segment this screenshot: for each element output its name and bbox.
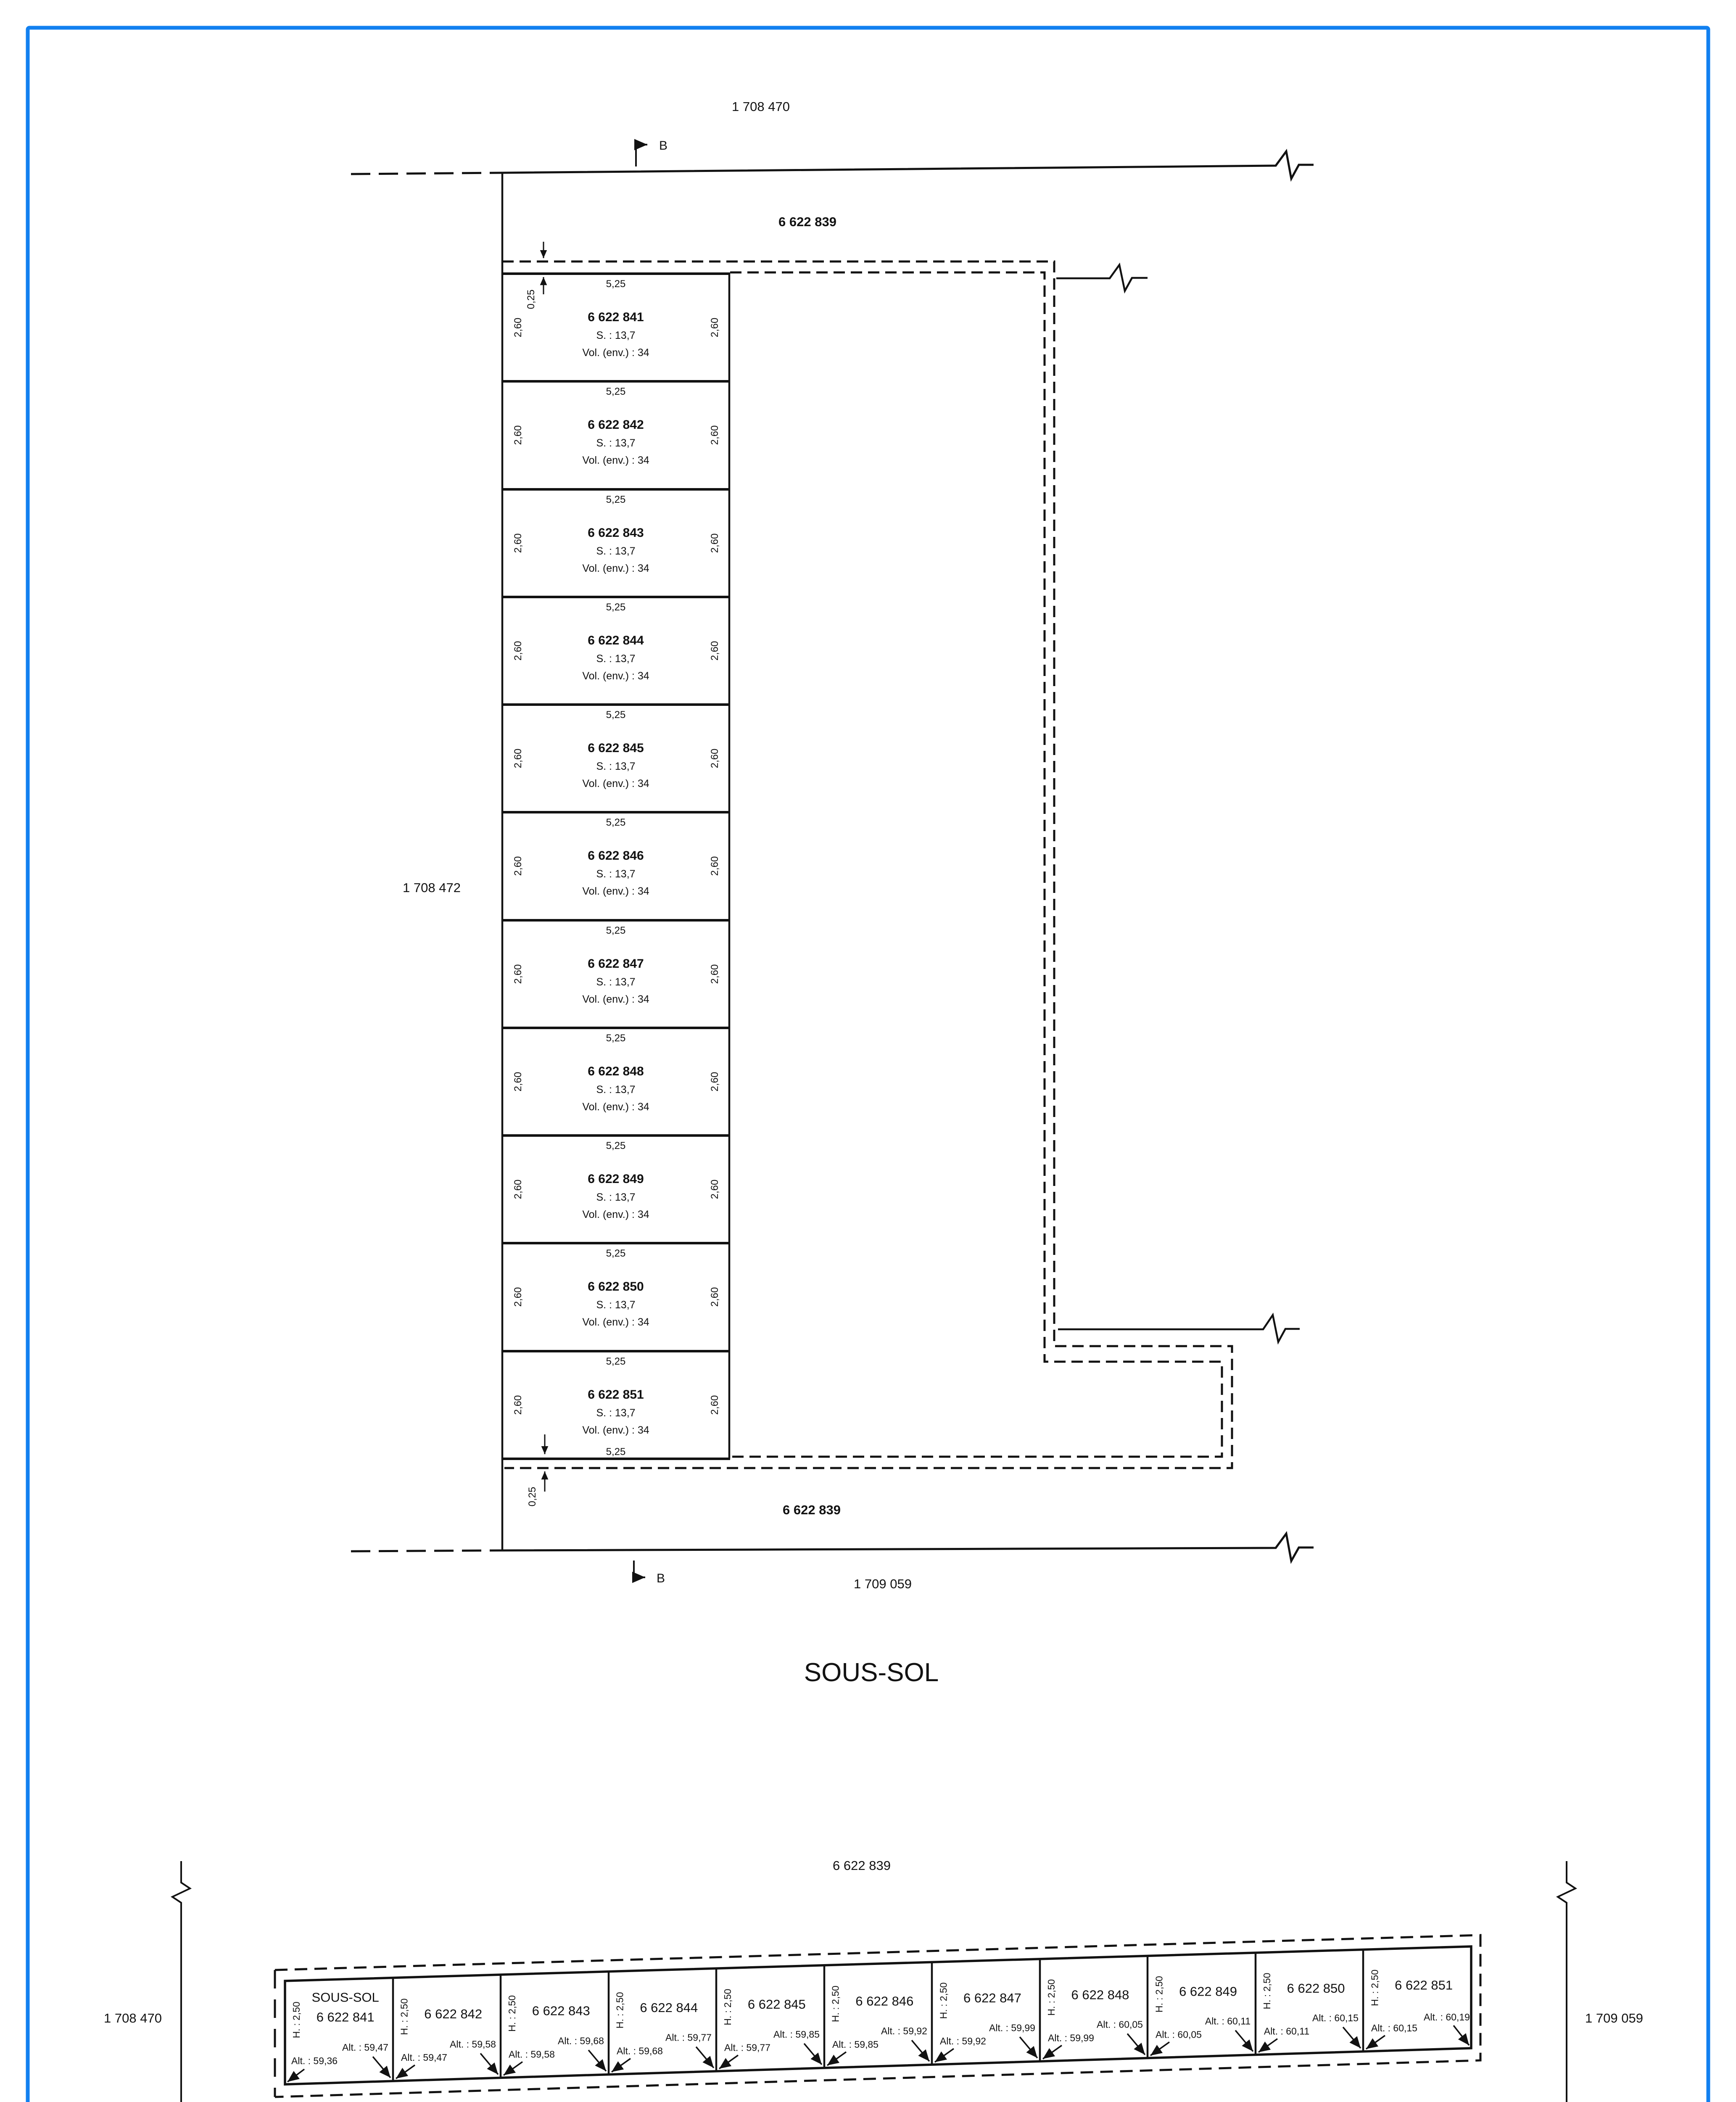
cell-width-label: 5,25: [606, 1248, 626, 1259]
parcel-number: 6 622 843: [588, 526, 644, 540]
plan-top-boundary: [502, 151, 1314, 179]
wall-offset-label-top: 0,25: [525, 290, 537, 309]
coupe-parcel-number: 6 622 845: [748, 1997, 806, 2012]
altitude-label: Alt. : 59,77: [724, 2042, 770, 2053]
altitude-arrow: [696, 2047, 714, 2068]
cell-height-label: 2,60: [709, 533, 720, 553]
altitude-arrow: [396, 2065, 415, 2078]
cell-height-label: 2,60: [512, 856, 524, 876]
altitude-label: Alt. : 59,77: [665, 2032, 712, 2043]
altitude-arrow: [1127, 2033, 1145, 2054]
parcel-volume: Vol. (env.) : 34: [582, 885, 649, 897]
cell-height-label: 2,60: [709, 425, 720, 445]
cell-height-label: 2,60: [512, 1072, 524, 1092]
coupe-height-label: H. : 2,50: [507, 1995, 517, 2032]
altitude-arrow: [288, 2069, 304, 2082]
coupe-cells: SOUS-SOL6 622 841H. : 2,506 622 842H. : …: [288, 1949, 1470, 2082]
cell-height-label: 2,60: [512, 749, 524, 768]
coupe-parcel-number: 6 622 851: [1395, 1978, 1453, 1992]
coupe-room-label: SOUS-SOL: [312, 1990, 379, 2005]
altitude-arrow: [480, 2053, 498, 2074]
plan-bottom-boundary-dashed: [351, 1550, 502, 1551]
altitude-label: Alt. : 59,47: [401, 2052, 447, 2063]
cell-width-label: 5,25: [606, 1356, 626, 1367]
section-view: 6 622 839 6 622 839 1 708 470 1 709 059 …: [104, 1858, 1643, 2102]
altitude-label: Alt. : 60,15: [1371, 2023, 1417, 2033]
coupe-height-label: H. : 2,50: [1046, 1979, 1057, 2016]
coupe-height-label: H. : 2,50: [1369, 1970, 1380, 2006]
parcel-volume: Vol. (env.) : 34: [582, 1209, 649, 1220]
coupe-parcel-number: 6 622 850: [1287, 1981, 1345, 1996]
cell-height-label: 2,60: [709, 856, 720, 876]
coord-label-bottom: 1 709 059: [854, 1576, 912, 1591]
cell-height-label: 2,60: [512, 1287, 524, 1307]
altitude-label: Alt. : 59,99: [1048, 2032, 1094, 2043]
coupe-height-label: H. : 2,50: [399, 1999, 410, 2035]
coupe-parcel-number: 6 622 848: [1071, 1987, 1129, 2002]
parcel-number: 6 622 847: [588, 957, 644, 971]
altitude-label: Alt. : 59,99: [989, 2022, 1035, 2033]
parcel-surface: S. : 13,7: [596, 437, 635, 449]
parcel-surface: S. : 13,7: [596, 1407, 635, 1419]
parcel-volume: Vol. (env.) : 34: [582, 347, 649, 359]
plan-bottom-boundary: [502, 1534, 1314, 1561]
altitude-arrow: [1150, 2042, 1169, 2055]
parcel-label-top: 6 622 839: [778, 214, 836, 229]
wall-offset-dim-bottom: 0,25: [527, 1434, 545, 1506]
section-letter-top: B: [659, 139, 667, 153]
neighbour-line-mid: [1058, 1315, 1300, 1342]
cell-height-label: 2,60: [512, 641, 524, 661]
parcel-number: 6 622 848: [588, 1064, 644, 1078]
altitude-arrow: [1020, 2037, 1037, 2058]
altitude-arrow: [612, 2059, 631, 2072]
cell-width-label: 5,25: [606, 278, 626, 290]
cell-height-label: 2,60: [709, 749, 720, 768]
coupe-parcel-number: 6 622 841: [317, 2010, 375, 2025]
parcel-surface: S. : 13,7: [596, 330, 635, 341]
coupe-height-label: H. : 2,50: [291, 2002, 302, 2038]
cell-height-label: 2,60: [512, 533, 524, 553]
cell-height-label: 2,60: [512, 964, 524, 984]
coupe-parcel-number: 6 622 846: [855, 1994, 913, 2009]
altitude-arrow: [1343, 2027, 1361, 2048]
parcel-surface: S. : 13,7: [596, 976, 635, 988]
altitude-arrow: [804, 2044, 822, 2065]
altitude-label: Alt. : 59,58: [450, 2039, 496, 2049]
neighbour-line-top: [1056, 265, 1148, 291]
building-outline-dashed-inner: [730, 272, 1222, 1457]
parcel-number: 6 622 849: [588, 1172, 644, 1186]
parcel-number: 6 622 846: [588, 849, 644, 863]
parcel-volume: Vol. (env.) : 34: [582, 562, 649, 574]
parcel-surface: S. : 13,7: [596, 545, 635, 557]
cell-width-label: 5,25: [606, 494, 626, 505]
altitude-label: Alt. : 59,85: [773, 2029, 820, 2040]
cell-height-label: 2,60: [709, 1287, 720, 1307]
parcel-number: 6 622 845: [588, 741, 644, 755]
cell-width-label: 5,25: [606, 386, 626, 397]
altitude-arrow: [1366, 2036, 1385, 2049]
altitude-arrow: [588, 2050, 606, 2071]
parcel-surface: S. : 13,7: [596, 653, 635, 665]
cell-width-label: 5,25: [606, 709, 626, 721]
altitude-label: Alt. : 60,15: [1312, 2012, 1359, 2023]
coord-label-top: 1 708 470: [732, 99, 790, 114]
parcel-number: 6 622 851: [588, 1388, 644, 1402]
parcel-surface: S. : 13,7: [596, 761, 635, 772]
coupe-right-boundary: [1558, 1861, 1575, 2102]
plan-cells: 5,256 622 841S. : 13,7Vol. (env.) : 342,…: [501, 274, 730, 1459]
altitude-arrow: [504, 2062, 522, 2075]
parcel-number: 6 622 850: [588, 1280, 644, 1294]
parcel-volume: Vol. (env.) : 34: [582, 1424, 649, 1436]
altitude-arrow: [719, 2055, 738, 2069]
coupe-height-label: H. : 2,50: [1153, 1976, 1164, 2012]
parcel-volume: Vol. (env.) : 34: [582, 993, 649, 1005]
altitude-label: Alt. : 59,85: [832, 2039, 879, 2050]
cell-width-label: 5,25: [606, 1140, 626, 1151]
coupe-parcel-number: 6 622 842: [424, 2007, 482, 2021]
altitude-label: Alt. : 59,36: [291, 2055, 338, 2066]
altitude-arrow: [1235, 2031, 1253, 2052]
altitude-arrow: [912, 2040, 929, 2061]
altitude-arrow: [1454, 2025, 1469, 2045]
cell-height-label: 2,60: [512, 425, 524, 445]
cell-width-label: 5,25: [606, 1033, 626, 1044]
coupe-parcel-number: 6 622 849: [1179, 1984, 1237, 1999]
coupe-height-label: H. : 2,50: [830, 1986, 841, 2022]
altitude-label: Alt. : 59,92: [881, 2025, 927, 2036]
coord-label-left: 1 708 472: [403, 880, 461, 895]
altitude-arrow: [935, 2049, 954, 2062]
coupe-height-label: H. : 2,50: [615, 1992, 625, 2028]
parcel-volume: Vol. (env.) : 34: [582, 1316, 649, 1328]
altitude-label: Alt. : 60,05: [1156, 2029, 1202, 2040]
parcel-surface: S. : 13,7: [596, 1084, 635, 1096]
altitude-label: Alt. : 59,68: [617, 2046, 663, 2057]
parcel-surface: S. : 13,7: [596, 1191, 635, 1203]
cell-height-label: 2,60: [709, 1180, 720, 1199]
plan-title: SOUS-SOL: [804, 1658, 939, 1687]
altitude-label: Alt. : 59,92: [940, 2036, 986, 2047]
parcel-label-bottom: 6 622 839: [783, 1503, 841, 1517]
parcel-volume: Vol. (env.) : 34: [582, 1101, 649, 1113]
plan-top-boundary-dashed: [351, 173, 502, 174]
cell-height-label: 2,60: [512, 1180, 524, 1199]
altitude-arrow: [373, 2057, 390, 2078]
altitude-label: Alt. : 59,58: [509, 2049, 555, 2060]
altitude-arrow: [827, 2052, 846, 2065]
coupe-left-boundary: [172, 1861, 190, 2102]
parcel-surface: S. : 13,7: [596, 1299, 635, 1311]
coupe-parcel-number: 6 622 844: [640, 2000, 698, 2015]
cell-width-label: 5,25: [606, 817, 626, 828]
cell-height-label: 2,60: [709, 1072, 720, 1092]
page-border: [28, 28, 1708, 2102]
section-marker-top: [636, 145, 647, 166]
coupe-parcel-number: 6 622 847: [963, 1991, 1021, 2005]
coupe-parcel-number: 6 622 843: [532, 2003, 590, 2018]
parcel-number: 6 622 842: [588, 418, 644, 432]
altitude-label: Alt. : 60,19: [1424, 2012, 1470, 2023]
cell-width-label: 5,25: [606, 925, 626, 936]
coupe-coord-left: 1 708 470: [104, 2011, 162, 2025]
cell-height-label: 2,60: [709, 1395, 720, 1415]
wall-offset-dim-top: 0,25: [525, 242, 543, 309]
altitude-label: Alt. : 59,68: [558, 2036, 604, 2047]
parcel-surface: S. : 13,7: [596, 868, 635, 880]
parcel-volume: Vol. (env.) : 34: [582, 670, 649, 682]
plan-view: B B 0,25 0,25 1 708 470 6 622 839 1 708 …: [351, 99, 1314, 1687]
coupe-coord-right: 1 709 059: [1585, 2011, 1643, 2025]
parcel-number: 6 622 841: [588, 310, 644, 324]
section-letter-bottom: B: [657, 1571, 665, 1585]
altitude-label: Alt. : 60,11: [1205, 2016, 1251, 2027]
altitude-label: Alt. : 60,11: [1264, 2026, 1309, 2037]
parcel-number: 6 622 844: [588, 634, 644, 647]
altitude-label: Alt. : 59,47: [342, 2042, 388, 2053]
cell-height-label: 2,60: [512, 318, 524, 338]
wall-offset-label-bottom: 0,25: [527, 1487, 538, 1507]
cadastral-drawing: B B 0,25 0,25 1 708 470 6 622 839 1 708 …: [0, 0, 1736, 2102]
altitude-arrow: [1043, 2045, 1062, 2059]
cell-height-label: 2,60: [709, 318, 720, 338]
coupe-height-label: H. : 2,50: [938, 1982, 949, 2019]
altitude-arrow: [1258, 2039, 1277, 2052]
cell-height-label: 2,60: [709, 964, 720, 984]
cell-width-label: 5,25: [606, 602, 626, 613]
cell-height-label: 2,60: [709, 641, 720, 661]
cell-width-label: 5,25: [606, 1446, 626, 1458]
coupe-parcel-top: 6 622 839: [833, 1858, 891, 1873]
coupe-height-label: H. : 2,50: [722, 1989, 733, 2025]
parcel-volume: Vol. (env.) : 34: [582, 454, 649, 466]
section-marker-bottom: [634, 1561, 645, 1577]
parcel-volume: Vol. (env.) : 34: [582, 778, 649, 790]
coupe-height-label: H. : 2,50: [1261, 1973, 1272, 2010]
altitude-label: Alt. : 60,05: [1097, 2019, 1143, 2030]
cell-height-label: 2,60: [512, 1395, 524, 1415]
